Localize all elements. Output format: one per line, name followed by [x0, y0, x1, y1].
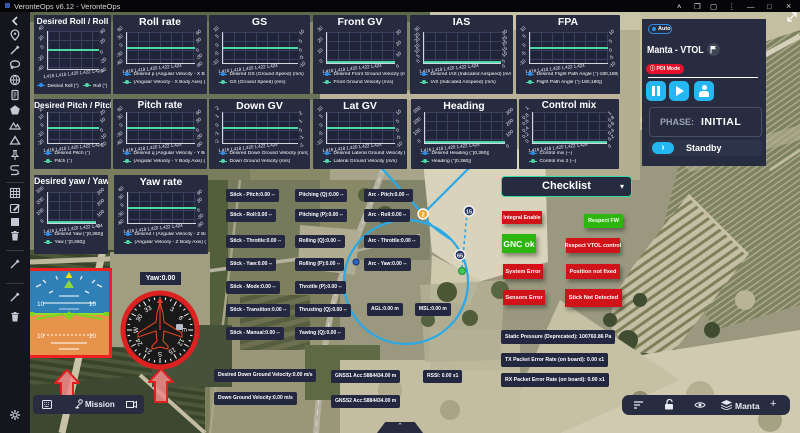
svg-text:15: 15 [466, 210, 472, 216]
svg-text:10: 10 [89, 333, 97, 340]
svg-text:10: 10 [37, 333, 45, 340]
svg-text:S: S [157, 350, 162, 357]
svg-text:65: 65 [457, 254, 463, 260]
svg-text:10: 10 [89, 301, 97, 308]
svg-text:10: 10 [37, 301, 45, 308]
